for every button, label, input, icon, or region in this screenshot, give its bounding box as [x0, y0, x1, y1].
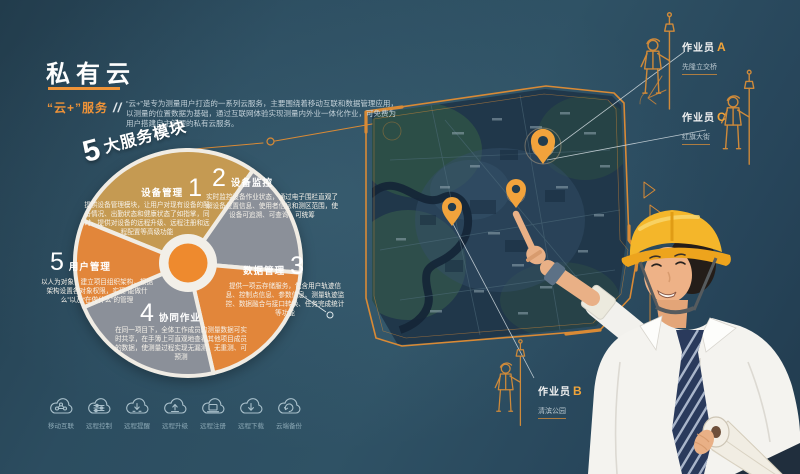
- module-1-header: 设备管理 1: [118, 176, 202, 201]
- worker-c-letter: C: [717, 110, 726, 124]
- worker-b-label: 作业员B 清滨公园: [538, 382, 582, 419]
- module-4-name: 协同作业: [159, 310, 201, 324]
- cloud-feature-row: 移动互联 远程控制 远程提醒: [46, 396, 304, 430]
- text-layer: 私有云 “云+”服务// “云+”是专为测量用户打造的一系列云服务，主要围绕着移…: [0, 0, 800, 474]
- module-5-header: 5 用户管理: [50, 250, 111, 275]
- feature-label: 移动互联: [48, 420, 74, 430]
- page-title: 私有云: [46, 54, 136, 89]
- remote-download-cloud-icon: [236, 396, 266, 418]
- module-3-name: 数据管理: [243, 263, 285, 277]
- worker-a-location: 先隆立交桥: [682, 62, 717, 75]
- worker-c-location: 红旗大街: [682, 132, 710, 145]
- feature-mobile-internet: 移动互联: [46, 396, 76, 430]
- worker-c-label: 作业员C 红旗大街: [682, 108, 726, 145]
- module-2-name: 设备监控: [231, 175, 273, 189]
- cloud-backup-icon: [274, 396, 304, 418]
- worker-a-label: 作业员A 先隆立交桥: [682, 38, 726, 75]
- module-1-name: 设备管理: [141, 185, 183, 199]
- title-underline: [48, 87, 120, 90]
- feature-remote-upgrade: 远程升级: [160, 396, 190, 430]
- remote-control-cloud-icon: [84, 396, 114, 418]
- module-1-desc: 提供设备管理模块，让用户对现有设备的配备情况、出勤状态和健康状态了如指掌，同时，…: [82, 201, 212, 237]
- subtitle: “云+”服务//: [47, 99, 122, 116]
- modules-heading-number: 5: [79, 133, 104, 169]
- module-2-header: 2 设备监控: [212, 166, 273, 191]
- feature-label: 远程注册: [200, 420, 226, 430]
- worker-c-name: 作业员: [682, 113, 715, 124]
- feature-label: 远程提醒: [124, 420, 150, 430]
- module-5-desc: 以人为对象，建立项目组织架构，根据架构设置各对象权限，实现“能做什么”以及“在做…: [40, 278, 154, 305]
- feature-remote-download: 远程下载: [236, 396, 266, 430]
- feature-remote-register: 远程注册: [198, 396, 228, 430]
- module-3-header: 数据管理 3: [228, 254, 304, 279]
- remote-reminder-cloud-icon: [122, 396, 152, 418]
- module-5-name: 用户管理: [69, 259, 111, 273]
- worker-b-letter: B: [573, 384, 582, 398]
- feature-label: 远程下载: [238, 420, 264, 430]
- feature-remote-control: 远程控制: [84, 396, 114, 430]
- remote-register-cloud-icon: [198, 396, 228, 418]
- modules-heading-text: 大服务模块: [102, 118, 189, 156]
- worker-b-name: 作业员: [538, 387, 571, 398]
- module-2-desc: 实时监控设备作业状态，通过电子围栏直观了解设备位置信息、使用者信息和测区范围，使…: [206, 193, 338, 220]
- worker-a-name: 作业员: [682, 43, 715, 54]
- module-2-number: 2: [212, 166, 226, 191]
- remote-upgrade-cloud-icon: [160, 396, 190, 418]
- feature-cloud-backup: 云端备份: [274, 396, 304, 430]
- feature-remote-reminder: 远程提醒: [122, 396, 152, 430]
- module-1-number: 1: [188, 176, 202, 201]
- worker-a-letter: A: [717, 40, 726, 54]
- subtitle-text: “云+”服务: [47, 101, 108, 115]
- feature-label: 远程升级: [162, 420, 188, 430]
- module-3-number: 3: [290, 254, 304, 279]
- worker-b-location: 清滨公园: [538, 406, 566, 419]
- module-5-number: 5: [50, 250, 64, 275]
- feature-label: 云端备份: [276, 420, 302, 430]
- poster-root: 私有云 “云+”服务// “云+”是专为测量用户打造的一系列云服务，主要围绕着移…: [0, 0, 800, 474]
- module-3-desc: 提供一项云存储服务，包含用户轨迹信息、控制点信息、参数信息、测量轨迹监控、数据融…: [224, 282, 346, 318]
- mobile-internet-cloud-icon: [46, 396, 76, 418]
- feature-label: 远程控制: [86, 420, 112, 430]
- module-4-desc: 在同一项目下，全体工作成员的测量数据可实时共享，在手簿上可直观地查看其他项目成员…: [112, 326, 250, 362]
- subtitle-slashes: //: [113, 100, 122, 115]
